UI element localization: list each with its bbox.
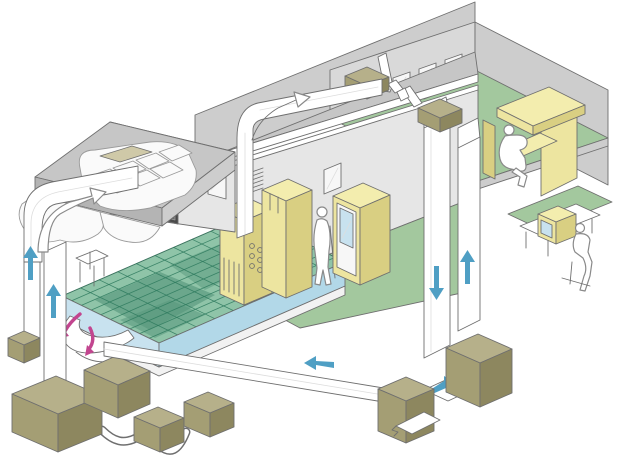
hvac-isometric-diagram	[0, 0, 640, 467]
cabinet-side	[286, 190, 312, 298]
person-head	[317, 207, 327, 217]
plant-box-small-left	[8, 331, 40, 363]
person-head	[504, 125, 514, 135]
desk-left-panel	[483, 120, 495, 179]
tall-cabinet	[262, 179, 312, 298]
door-glass	[340, 208, 353, 248]
glass-door-cabinet	[333, 183, 390, 285]
ahu-bottom-left	[378, 377, 434, 443]
desk-monitor	[538, 206, 576, 244]
person-head	[576, 224, 585, 233]
riser-duct-front	[44, 242, 66, 395]
cabinet-front	[262, 190, 286, 298]
return-riser-duct	[458, 137, 480, 331]
ahu-bottom-right	[446, 334, 512, 407]
cabinet-side	[360, 195, 390, 285]
supply-drop-duct	[424, 115, 450, 358]
diagram-canvas	[0, 0, 640, 467]
person-body	[314, 219, 331, 285]
